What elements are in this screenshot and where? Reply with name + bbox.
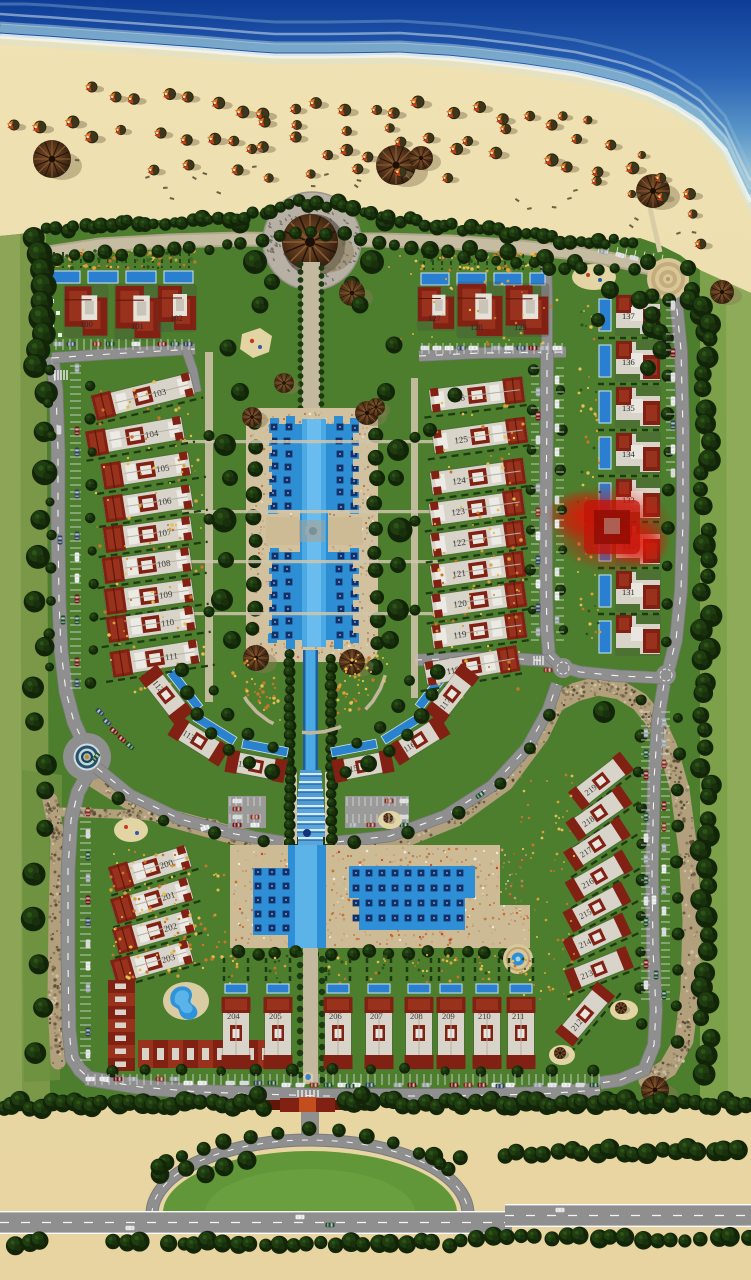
svg-text:211: 211 <box>512 1011 524 1021</box>
svg-text:134: 134 <box>622 449 636 459</box>
svg-text:207: 207 <box>370 1011 383 1021</box>
svg-text:209: 209 <box>442 1011 455 1021</box>
svg-text:136: 136 <box>622 357 635 367</box>
svg-text:100: 100 <box>80 319 93 329</box>
svg-text:135: 135 <box>622 403 635 413</box>
svg-text:206: 206 <box>329 1011 342 1021</box>
svg-text:102: 102 <box>170 313 183 323</box>
svg-text:110: 110 <box>160 617 175 629</box>
svg-text:205: 205 <box>269 1011 282 1021</box>
svg-text:125: 125 <box>454 434 469 446</box>
svg-text:128: 128 <box>470 322 483 332</box>
svg-text:123: 123 <box>451 506 466 518</box>
svg-text:109: 109 <box>158 589 173 601</box>
svg-text:137: 137 <box>622 311 635 321</box>
svg-text:208: 208 <box>410 1011 423 1021</box>
svg-text:127: 127 <box>428 313 441 323</box>
svg-text:111: 111 <box>164 650 178 662</box>
svg-text:120: 120 <box>453 598 468 610</box>
svg-text:119: 119 <box>453 629 468 641</box>
svg-text:108: 108 <box>156 558 171 570</box>
svg-text:122: 122 <box>452 537 467 549</box>
svg-text:131: 131 <box>622 587 635 597</box>
svg-text:101: 101 <box>131 321 144 331</box>
svg-text:210: 210 <box>478 1011 491 1021</box>
svg-text:124: 124 <box>452 475 467 487</box>
svg-text:204: 204 <box>227 1011 241 1021</box>
